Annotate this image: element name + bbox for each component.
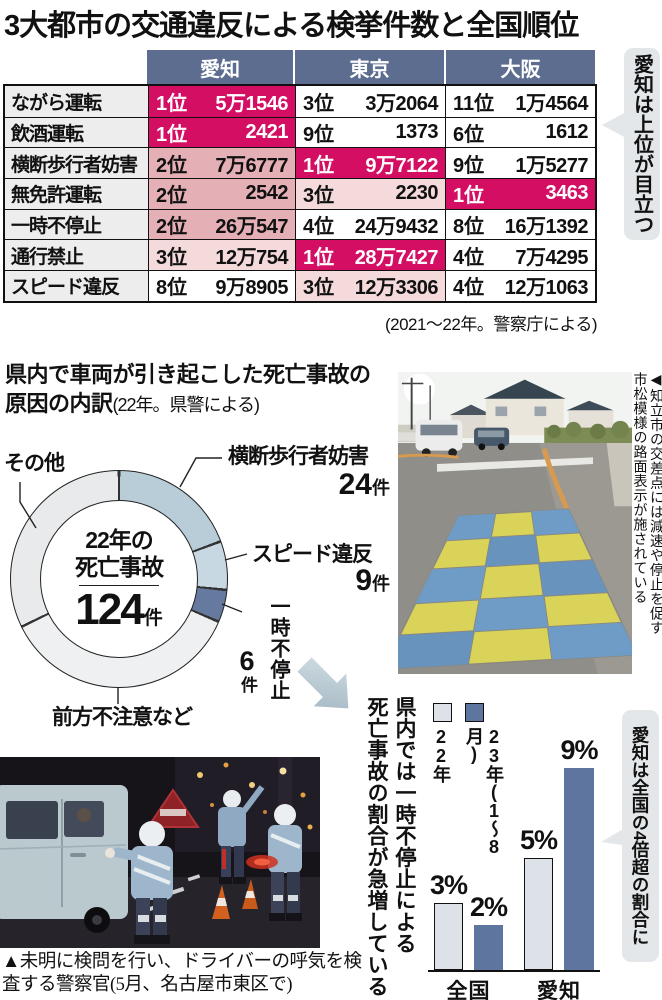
night-caption-line2: 査する警察官(5月、名古屋市東区で) — [2, 974, 361, 997]
bar-group-national-2022: 3% — [434, 870, 463, 970]
count-text: 1万5277 — [515, 149, 595, 178]
rank-text: 3位 — [296, 87, 347, 116]
count-text: 9万8905 — [215, 271, 295, 300]
bar-section-title: 県内では一時不停止による 死亡事故の割合が急増している — [362, 696, 418, 1000]
table-cell: 1位28万7427 — [295, 240, 445, 270]
table-cell: 11位1万4564 — [445, 86, 595, 117]
segment-label-crosswalk: 横断歩行者妨害 — [228, 440, 368, 470]
table-source-note: (2021〜22年。警察庁による) — [280, 310, 597, 335]
page-title: 3大都市の交通違反による検挙件数と全国順位 — [4, 2, 578, 44]
donut-section-title-line1: 県内で車両が引き起こした死亡事故の — [5, 357, 371, 389]
checkered-road-photo — [398, 372, 632, 674]
rank-text: 8位 — [446, 210, 497, 239]
count-text: 1373 — [396, 121, 446, 144]
count-number: 24 — [339, 468, 372, 502]
rank-text: 1位 — [296, 149, 347, 178]
count-text: 28万7427 — [355, 241, 445, 270]
bar-title-col1: 県内では一時不停止による — [390, 696, 418, 1000]
count-text: 3万2064 — [365, 87, 445, 116]
row-label: 通行禁止 — [5, 240, 148, 270]
table-row: 通行禁止 3位12万754 1位28万7427 4位7万4295 — [5, 239, 595, 270]
bar-aichi-2022 — [524, 858, 553, 970]
rank-text: 3位 — [149, 241, 200, 270]
road-caption-line2: 市松模様の路面表示が施されている — [630, 372, 647, 674]
count-unit: 件 — [372, 474, 390, 500]
rank-text: 9位 — [446, 149, 497, 178]
stop-sign-ratio-bar-chart: 3% 2% 5% 9% 全国 愛知 — [428, 730, 604, 980]
rank-text: 3位 — [296, 179, 347, 208]
bar-value-label: 5% — [520, 825, 557, 856]
category-label-national: 全国 — [434, 975, 503, 1000]
bar-title-col2: 死亡事故の割合が急増している — [362, 696, 390, 1000]
segment-count-speeding: 9件 — [280, 564, 390, 598]
table-cell: 6位1612 — [445, 118, 595, 148]
table-cell: 9位1万5277 — [445, 148, 595, 178]
row-label: 飲酒運転 — [5, 118, 148, 148]
column-header-aichi: 愛知 — [147, 50, 293, 84]
count-unit: 件 — [372, 570, 390, 596]
count-text: 1612 — [546, 121, 596, 144]
table-row: 横断歩行者妨害 2位7万6777 1位9万7122 9位1万5277 — [5, 147, 595, 178]
count-text: 12万3306 — [355, 271, 445, 300]
table-row: 飲酒運転 1位2421 9位1373 6位1612 — [5, 117, 595, 148]
count-text: 2230 — [396, 182, 446, 205]
table-cell: 2位7万6777 — [148, 148, 295, 178]
table-cell: 1位2421 — [148, 118, 295, 148]
legend-swatch-2023 — [465, 703, 484, 722]
row-label: ながら運転 — [5, 86, 148, 117]
donut-section-title-bold: 原因の内訳 — [5, 391, 113, 416]
count-text: 26万547 — [215, 210, 295, 239]
table-body: ながら運転 1位5万1546 3位3万2064 11位1万4564 飲酒運転 1… — [3, 84, 597, 303]
table-cell: 3位12万3306 — [295, 271, 445, 301]
table-cell: 2位2542 — [148, 179, 295, 209]
bar-group-national-2023: 2% — [474, 892, 503, 970]
aichi-four-times-callout: 愛知は全国の4倍超の割合に — [622, 710, 659, 962]
donut-section-title-line2: 原因の内訳(22年。県警による) — [5, 386, 259, 418]
rank-text: 9位 — [296, 118, 347, 147]
road-photo-caption: ◀知立市の交差点には減速や停止を促す 市松模様の路面表示が施されている — [630, 372, 662, 674]
table-cell: 1位5万1546 — [148, 86, 295, 117]
row-label: スピード違反 — [5, 271, 148, 301]
count-number: 9 — [355, 564, 372, 598]
count-number: 6 — [232, 646, 262, 676]
table-row: スピード違反 8位9万8905 3位12万3306 4位12万1063 — [5, 270, 595, 301]
count-text: 24万9432 — [355, 210, 445, 239]
count-text: 2421 — [246, 121, 296, 144]
count-text: 7万4295 — [515, 241, 595, 270]
bar-value-label: 3% — [430, 870, 467, 901]
violation-rank-table: 愛知 東京 大阪 ながら運転 1位5万1546 3位3万2064 11位1万45… — [3, 50, 597, 303]
rank-text: 8位 — [149, 271, 200, 300]
bar-national-2023 — [474, 925, 503, 970]
count-text: 2542 — [246, 182, 296, 205]
bar-value-label: 2% — [470, 892, 507, 923]
table-cell: 3位3万2064 — [295, 86, 445, 117]
bar-aichi-2023 — [564, 768, 594, 970]
rank-text: 1位 — [149, 118, 200, 147]
callout-tail-left — [602, 110, 626, 140]
callout-text: 愛知は全国の4倍超の割合に — [628, 726, 653, 946]
table-row: ながら運転 1位5万1546 3位3万2064 11位1万4564 — [5, 86, 595, 117]
rank-text: 3位 — [296, 271, 347, 300]
table-cell: 9位1373 — [295, 118, 445, 148]
row-label: 無免許運転 — [5, 179, 148, 209]
segment-label-other: その他 — [4, 447, 64, 477]
aichi-top-rank-callout: 愛知は上位が目立つ — [624, 48, 660, 240]
road-caption-line1: ◀知立市の交差点には減速や停止を促す — [647, 372, 662, 674]
table-cell: 3位2230 — [295, 179, 445, 209]
rank-text: 1位 — [296, 241, 347, 270]
rank-text: 2位 — [149, 149, 200, 178]
count-text: 5万1546 — [215, 87, 295, 116]
segment-count-crosswalk: 24件 — [240, 468, 390, 502]
night-photo-caption: ▲未明に検問を行い、ドライバーの呼気を検 査する警察官(5月、名古屋市東区で) — [2, 951, 361, 997]
rank-text: 1位 — [446, 179, 497, 208]
rank-text: 4位 — [296, 210, 347, 239]
count-text: 9万7122 — [365, 149, 445, 178]
table-cell: 8位16万1392 — [445, 210, 595, 240]
count-text: 12万754 — [215, 241, 295, 270]
table-cell: 4位24万9432 — [295, 210, 445, 240]
bar-group-aichi-2022: 5% — [524, 825, 553, 970]
column-header-osaka: 大阪 — [446, 50, 595, 84]
rank-text: 2位 — [149, 210, 200, 239]
table-row: 一時不停止 2位26万547 4位24万9432 8位16万1392 — [5, 209, 595, 240]
rank-text: 4位 — [446, 271, 497, 300]
night-caption-line1: ▲未明に検問を行い、ドライバーの呼気を検 — [2, 951, 361, 974]
rank-text: 6位 — [446, 118, 497, 147]
table-cell: 1位9万7122 — [295, 148, 445, 178]
count-text: 7万6777 — [215, 149, 295, 178]
row-label: 一時不停止 — [5, 210, 148, 240]
infographic-page: 3大都市の交通違反による検挙件数と全国順位 愛知 東京 大阪 ながら運転 1位5… — [0, 0, 662, 1000]
bar-national-2022 — [434, 903, 463, 970]
x-axis-line — [428, 970, 600, 972]
count-text: 3463 — [546, 182, 596, 205]
count-unit: 件 — [238, 676, 257, 693]
table-row: 無免許運転 2位2542 3位2230 1位3463 — [5, 178, 595, 209]
transition-arrow-icon — [288, 648, 362, 722]
table-header-row: 愛知 東京 大阪 — [147, 50, 597, 84]
count-text: 16万1392 — [505, 210, 595, 239]
count-text: 1万4564 — [515, 87, 595, 116]
bar-group-aichi-2023: 9% — [564, 735, 594, 970]
column-header-tokyo: 東京 — [295, 50, 444, 84]
bar-value-label: 9% — [560, 735, 597, 766]
callout-text: 愛知は上位が目立つ — [628, 54, 657, 234]
rank-text: 1位 — [149, 87, 200, 116]
rank-text: 2位 — [149, 179, 200, 208]
rank-text: 11位 — [446, 87, 497, 116]
table-cell: 3位12万754 — [148, 240, 295, 270]
donut-section-title-note: (22年。県警による) — [113, 395, 259, 415]
callout-tail-left — [601, 828, 623, 850]
table-cell: 4位12万1063 — [445, 271, 595, 301]
table-cell: 8位9万8905 — [148, 271, 295, 301]
legend-swatch-2022 — [433, 703, 452, 722]
count-text: 12万1063 — [505, 271, 595, 300]
segment-label-inattention: 前方不注意など — [52, 701, 192, 731]
table-cell: 2位26万547 — [148, 210, 295, 240]
table-cell: 4位7万4295 — [445, 240, 595, 270]
category-label-aichi: 愛知 — [524, 975, 594, 1000]
rank-text: 4位 — [446, 241, 497, 270]
row-label: 横断歩行者妨害 — [5, 148, 148, 178]
table-cell: 1位3463 — [445, 179, 595, 209]
night-checkpoint-photo — [0, 757, 320, 948]
segment-count-stop-sign: 6件 — [234, 646, 260, 706]
